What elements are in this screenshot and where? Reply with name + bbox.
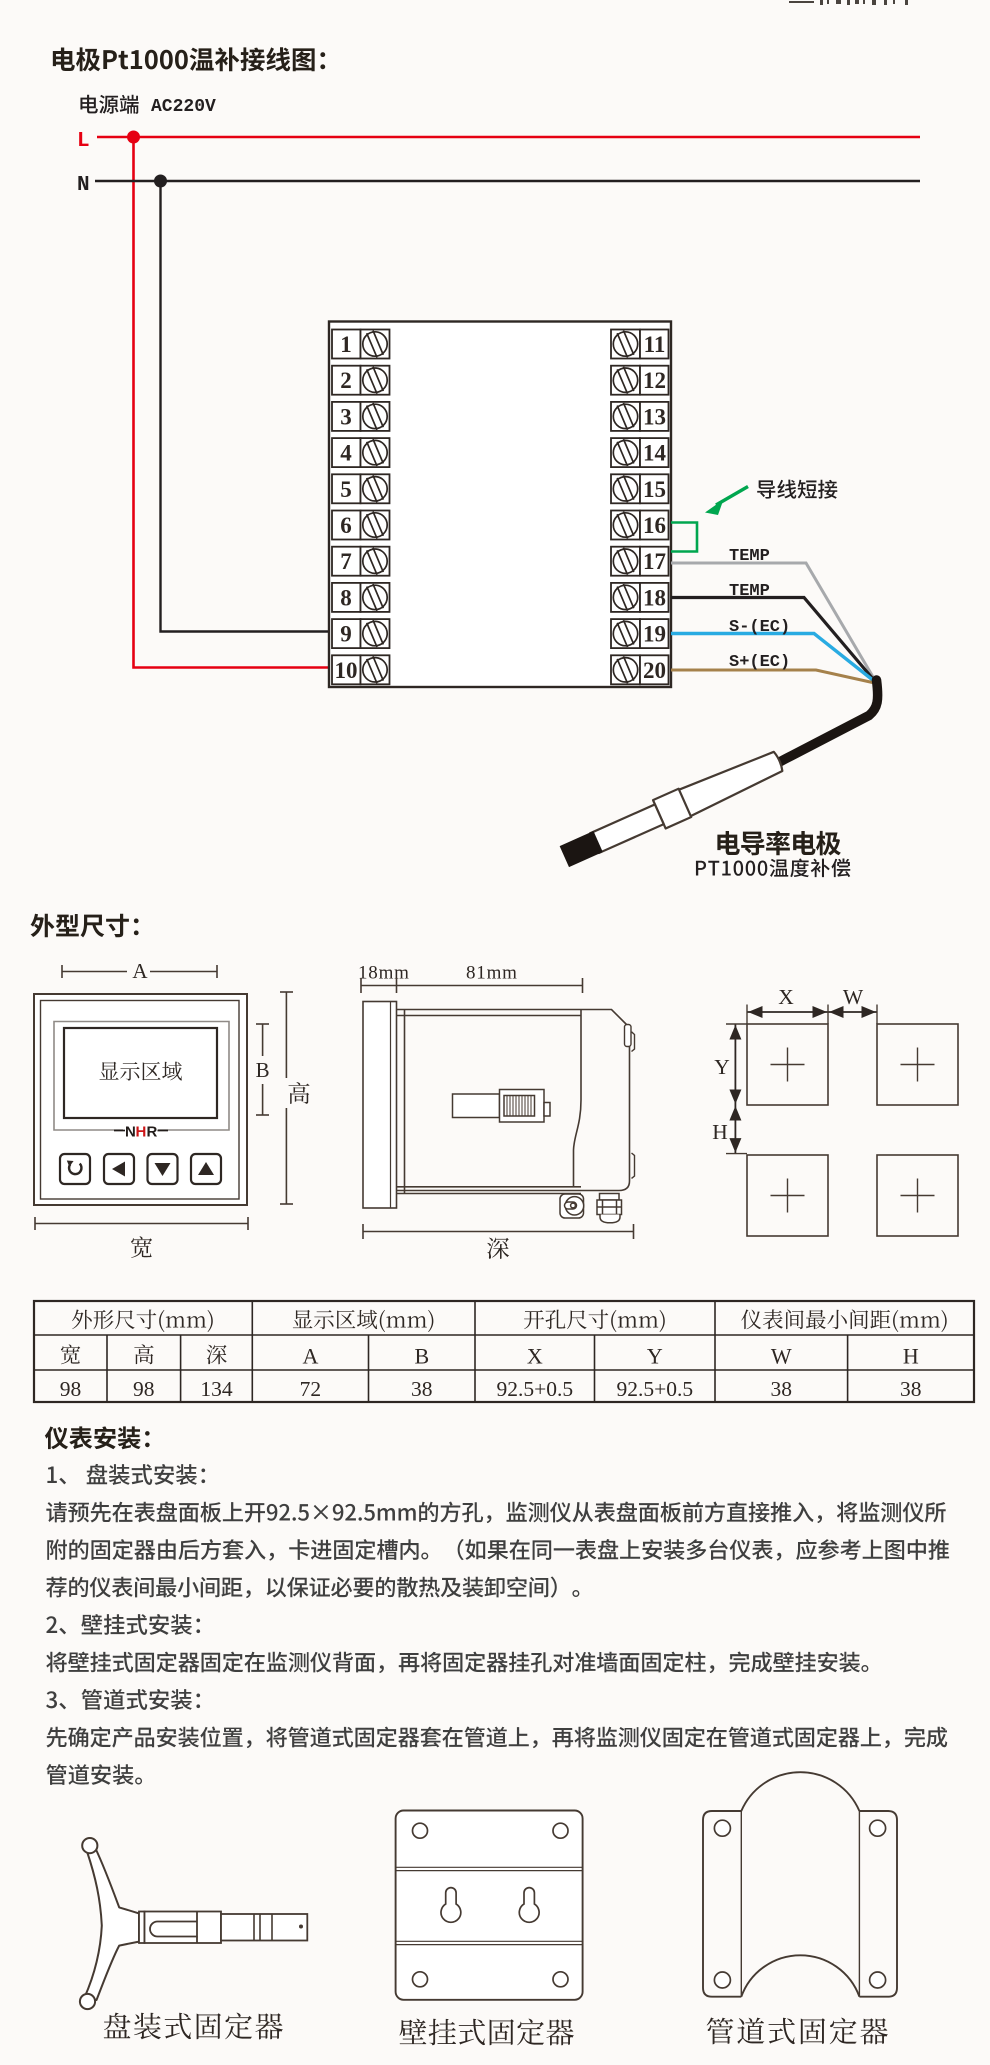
svg-text:20: 20 (643, 658, 666, 683)
svg-text:92.5+0.5: 92.5+0.5 (496, 1377, 573, 1401)
svg-text:TEMP: TEMP (729, 547, 770, 566)
svg-text:38: 38 (900, 1377, 922, 1401)
svg-text:13: 13 (643, 404, 666, 429)
svg-text:16: 16 (643, 513, 666, 538)
svg-text:B: B (414, 1344, 429, 1369)
svg-text:14: 14 (643, 441, 667, 466)
svg-text:17: 17 (643, 549, 666, 574)
svg-text:9: 9 (340, 622, 352, 647)
svg-text:19: 19 (643, 622, 666, 647)
svg-text:A: A (302, 1344, 318, 1369)
svg-text:4: 4 (340, 441, 352, 466)
svg-text:H: H (712, 1120, 728, 1144)
svg-text:15: 15 (643, 477, 666, 502)
svg-text:98: 98 (60, 1377, 82, 1401)
svg-text:6: 6 (340, 513, 352, 538)
svg-text:AC220V: AC220V (151, 97, 216, 117)
svg-text:18mm: 18mm (358, 963, 410, 984)
svg-text:X: X (778, 985, 794, 1009)
svg-text:38: 38 (771, 1377, 793, 1401)
svg-text:7: 7 (340, 549, 352, 574)
svg-text:18: 18 (643, 585, 666, 610)
svg-text:H: H (136, 1124, 147, 1141)
svg-text:S+(EC): S+(EC) (729, 653, 790, 672)
svg-text:81mm: 81mm (466, 963, 518, 984)
svg-text:3: 3 (340, 404, 352, 429)
svg-text:11: 11 (644, 332, 666, 357)
svg-text:TEMP: TEMP (729, 582, 770, 601)
svg-text:X: X (527, 1344, 543, 1369)
svg-text:N: N (77, 174, 90, 197)
svg-text:5: 5 (340, 477, 352, 502)
svg-text:38: 38 (411, 1377, 433, 1401)
svg-text:W: W (843, 985, 864, 1009)
svg-text:72: 72 (300, 1377, 322, 1401)
svg-text:N: N (125, 1124, 136, 1141)
svg-text:A: A (132, 959, 148, 983)
svg-text:98: 98 (133, 1377, 155, 1401)
svg-text:2: 2 (340, 368, 352, 393)
svg-text:Y: Y (714, 1055, 730, 1079)
svg-text:10: 10 (335, 658, 358, 683)
svg-text:8: 8 (340, 585, 352, 610)
svg-text:12: 12 (643, 368, 666, 393)
svg-text:R: R (147, 1124, 158, 1141)
svg-text:92.5+0.5: 92.5+0.5 (616, 1377, 693, 1401)
svg-text:S-(EC): S-(EC) (729, 618, 790, 637)
svg-text:1: 1 (340, 332, 352, 357)
svg-text:B: B (256, 1058, 270, 1082)
svg-text:L: L (77, 130, 90, 153)
svg-text:Y: Y (647, 1344, 663, 1369)
svg-text:W: W (771, 1344, 792, 1369)
svg-text:H: H (903, 1344, 919, 1369)
svg-text:134: 134 (200, 1377, 233, 1401)
